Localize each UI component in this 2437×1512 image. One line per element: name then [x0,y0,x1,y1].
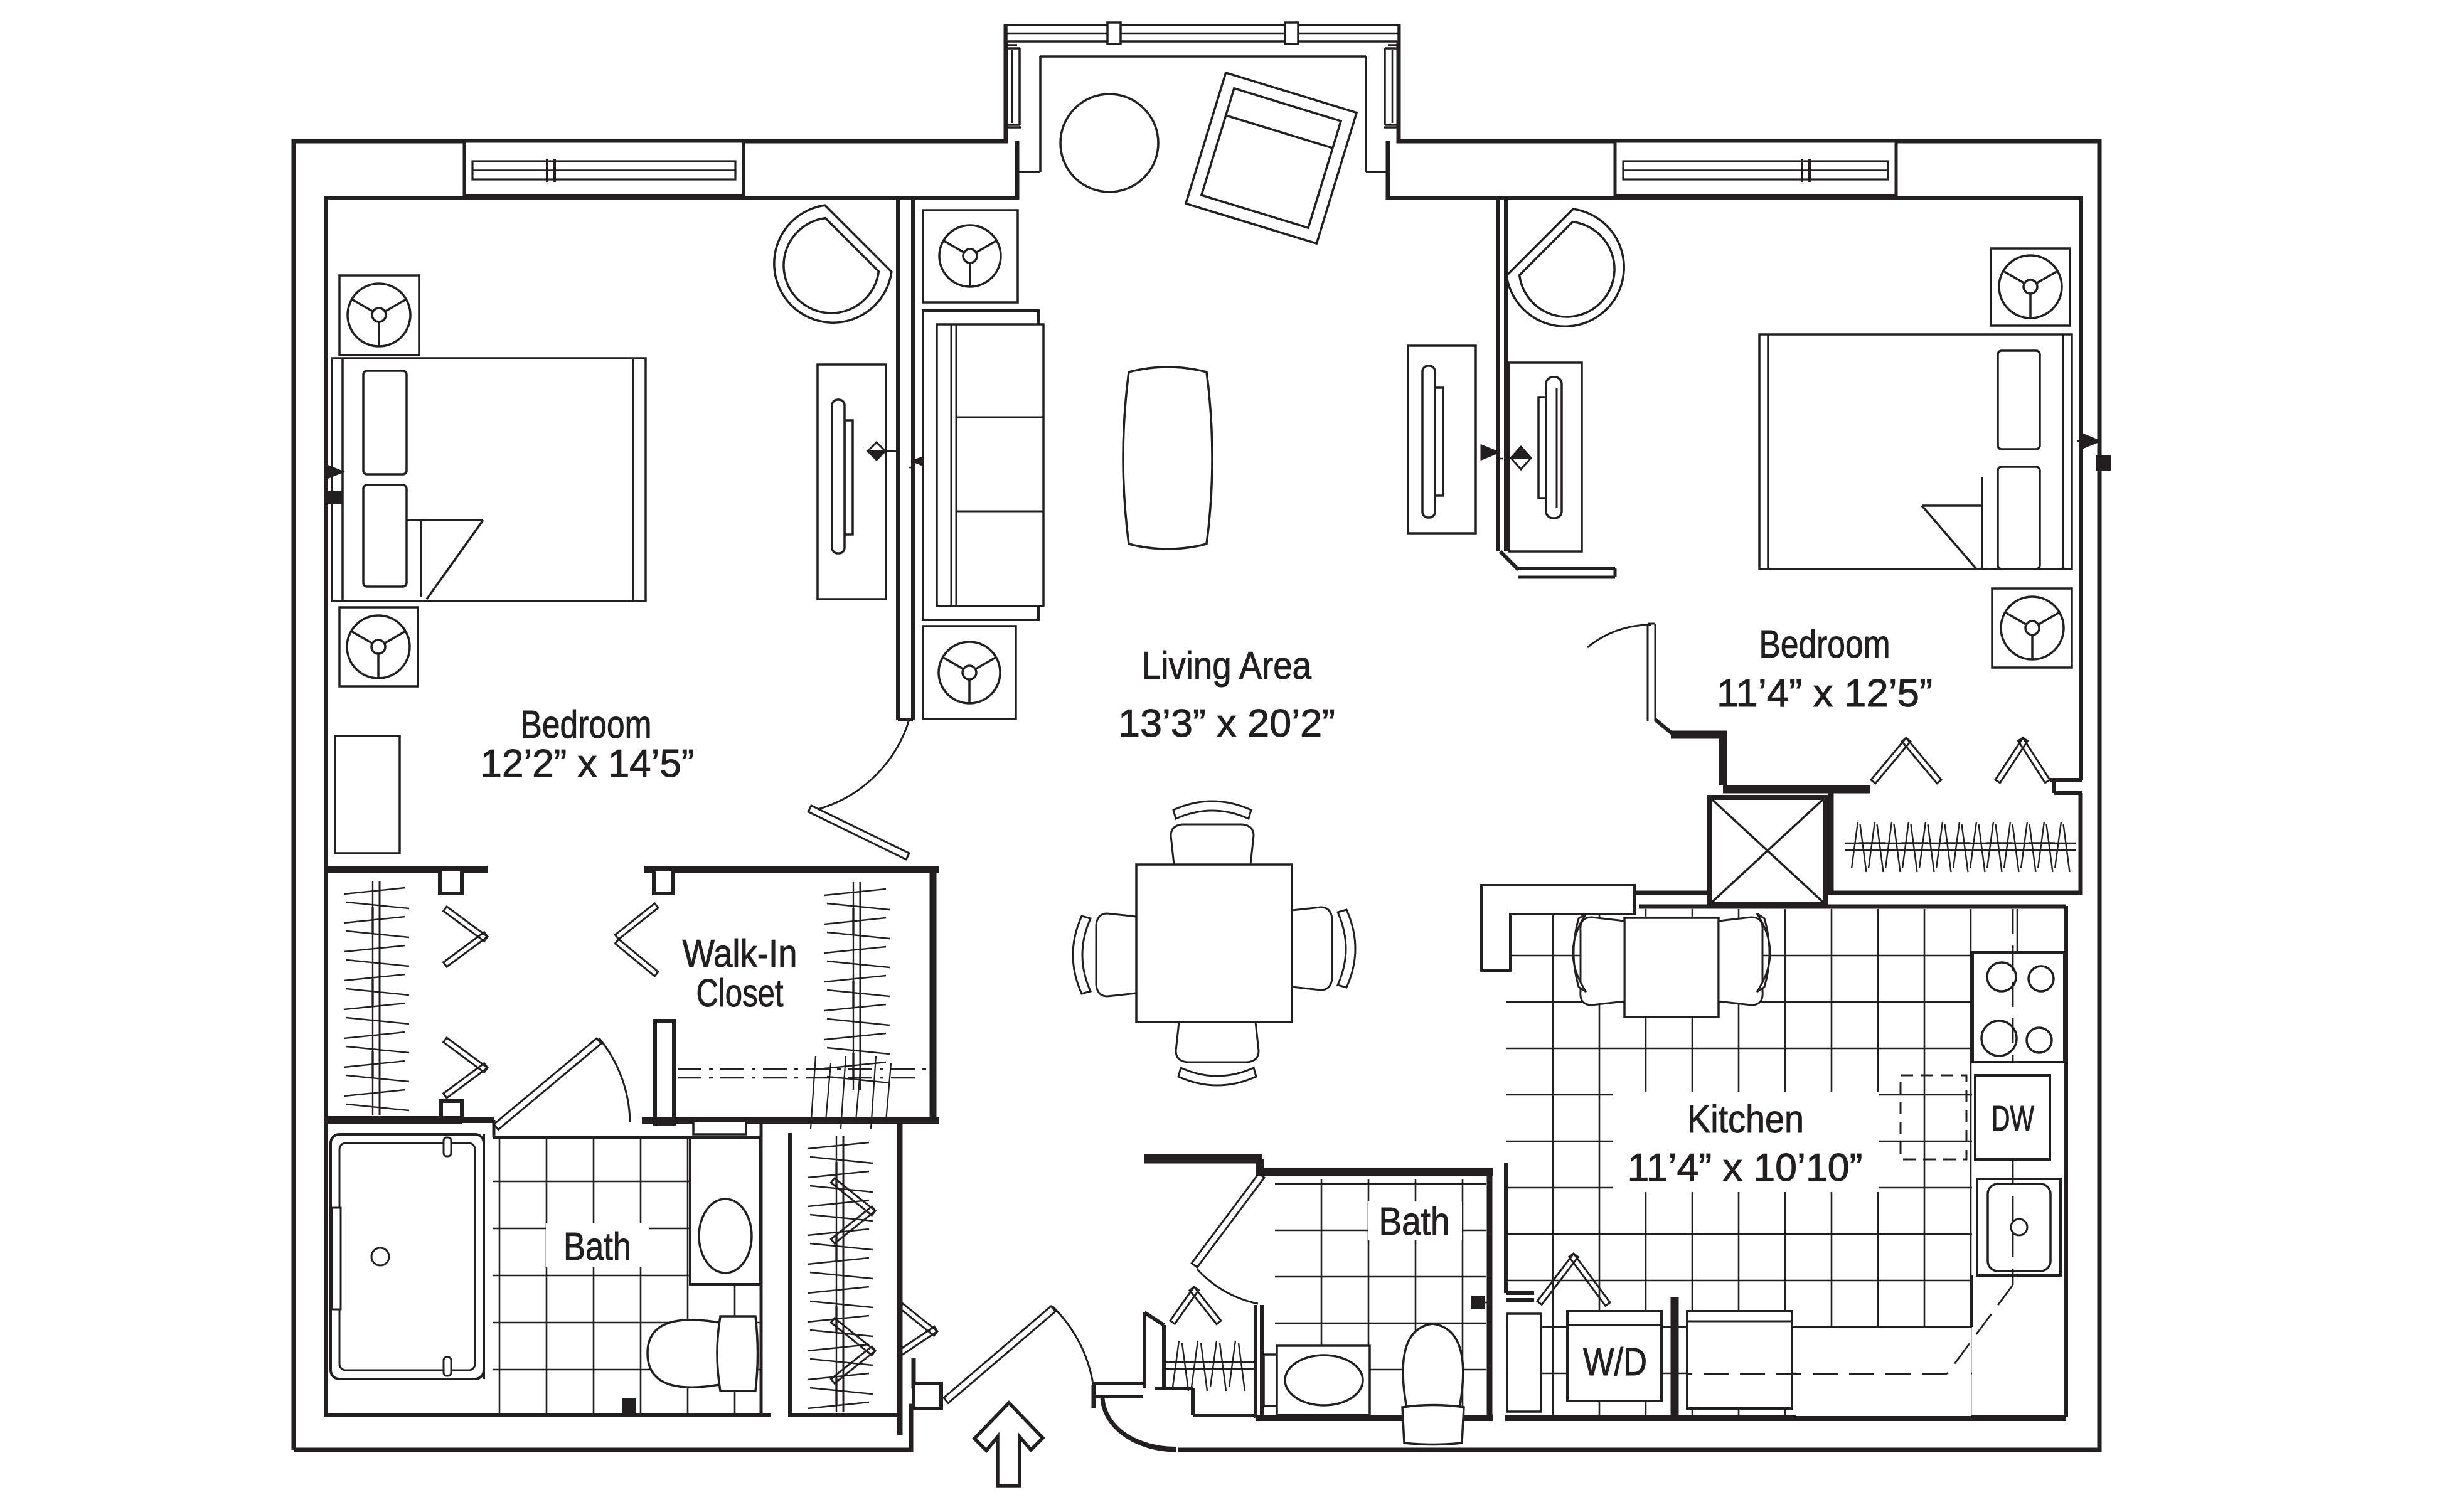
svg-text:DW: DW [1992,1099,2034,1139]
svg-text:13’3” x 20’2”: 13’3” x 20’2” [1118,702,1335,745]
svg-text:Bath: Bath [563,1225,631,1269]
svg-text:Bedroom: Bedroom [521,703,652,747]
svg-text:Living Area: Living Area [1142,644,1311,688]
svg-text:11’4” x 10’10”: 11’4” x 10’10” [1628,1146,1863,1190]
svg-text:W/D: W/D [1583,1341,1647,1384]
svg-text:12’2” x 14’5”: 12’2” x 14’5” [481,742,695,785]
svg-text:11’4” x 12’5”: 11’4” x 12’5” [1717,672,1933,715]
svg-text:Bath: Bath [1379,1200,1450,1243]
svg-text:Walk-In: Walk-In [683,932,797,976]
svg-text:Kitchen: Kitchen [1687,1098,1804,1141]
svg-text:Closet: Closet [696,972,784,1015]
svg-text:Bedroom: Bedroom [1759,623,1890,666]
